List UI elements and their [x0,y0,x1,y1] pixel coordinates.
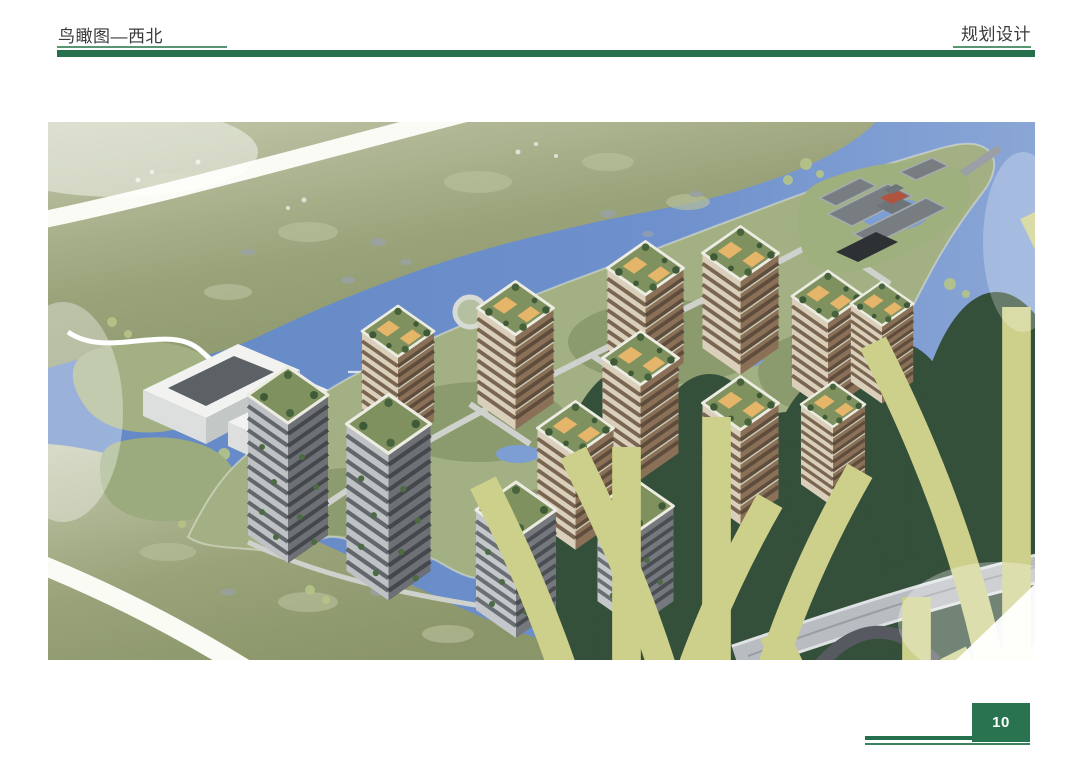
page-number-badge: 10 [972,703,1030,742]
aerial-view-rendering [48,122,1035,660]
footer-line [865,736,975,740]
tall-tower-2 [347,395,431,601]
title-underline [57,46,227,48]
section-underline [953,46,1031,48]
tall-tower-1 [248,367,328,563]
footer-thin-line [865,743,1030,745]
slide-page: { "header": { "title": "鸟瞰图—西北", "sectio… [0,0,1080,763]
section-label: 规划设计 [961,20,1031,45]
page-number: 10 [992,714,1010,731]
header-divider-bar [57,50,1035,57]
page-title: 鸟瞰图—西北 [58,22,163,47]
aerial-view-svg [48,122,1035,660]
